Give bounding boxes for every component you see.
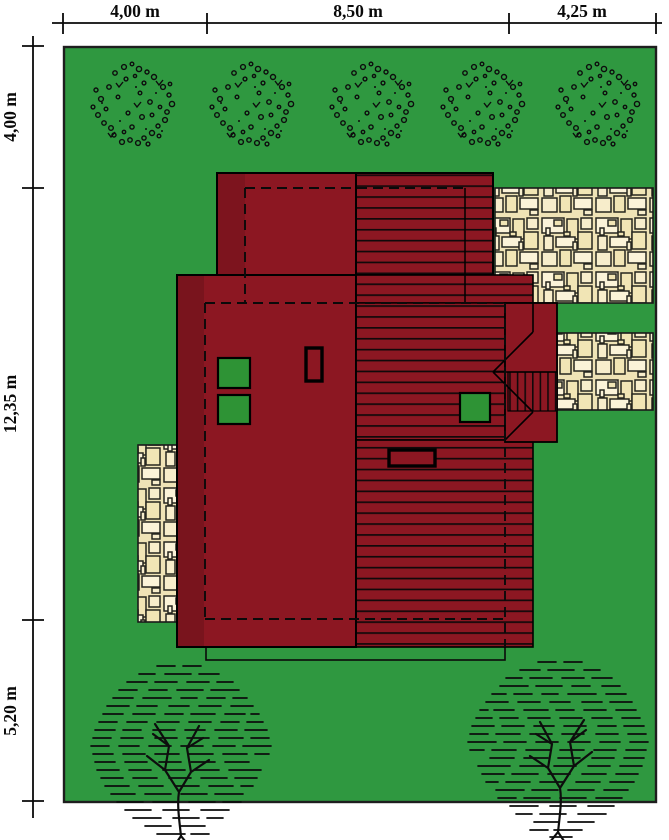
patio-right — [557, 333, 653, 410]
skylight-2 — [218, 395, 250, 424]
dim-label-left-3: 5,20 m — [0, 686, 20, 736]
roof-overhang-shade-left — [177, 275, 204, 647]
dim-label-top-2: 8,50 m — [333, 1, 383, 21]
roof-overhang-shade-top — [217, 173, 245, 275]
site-plan-page: { "plan": { "type": "architectural-site-… — [0, 0, 669, 840]
site-plan-canvas: 4,00 m 8,50 m 4,25 m 4,00 m 12,35 m 5,20… — [0, 0, 669, 840]
dim-label-top-3: 4,25 m — [557, 1, 607, 21]
dim-label-left-2: 12,35 m — [0, 374, 20, 433]
skylight-3 — [460, 393, 490, 422]
roof-band-hatched — [356, 275, 533, 303]
skylight-1 — [218, 358, 250, 388]
dim-label-left-1: 4,00 m — [0, 92, 20, 142]
dim-label-top-1: 4,00 m — [110, 1, 160, 21]
chimney-1 — [306, 348, 322, 381]
chimney-2 — [389, 450, 435, 466]
patio-left — [138, 445, 177, 622]
roof-wing-hip-face — [508, 372, 557, 411]
roof-main-hatched-lower — [356, 440, 533, 647]
